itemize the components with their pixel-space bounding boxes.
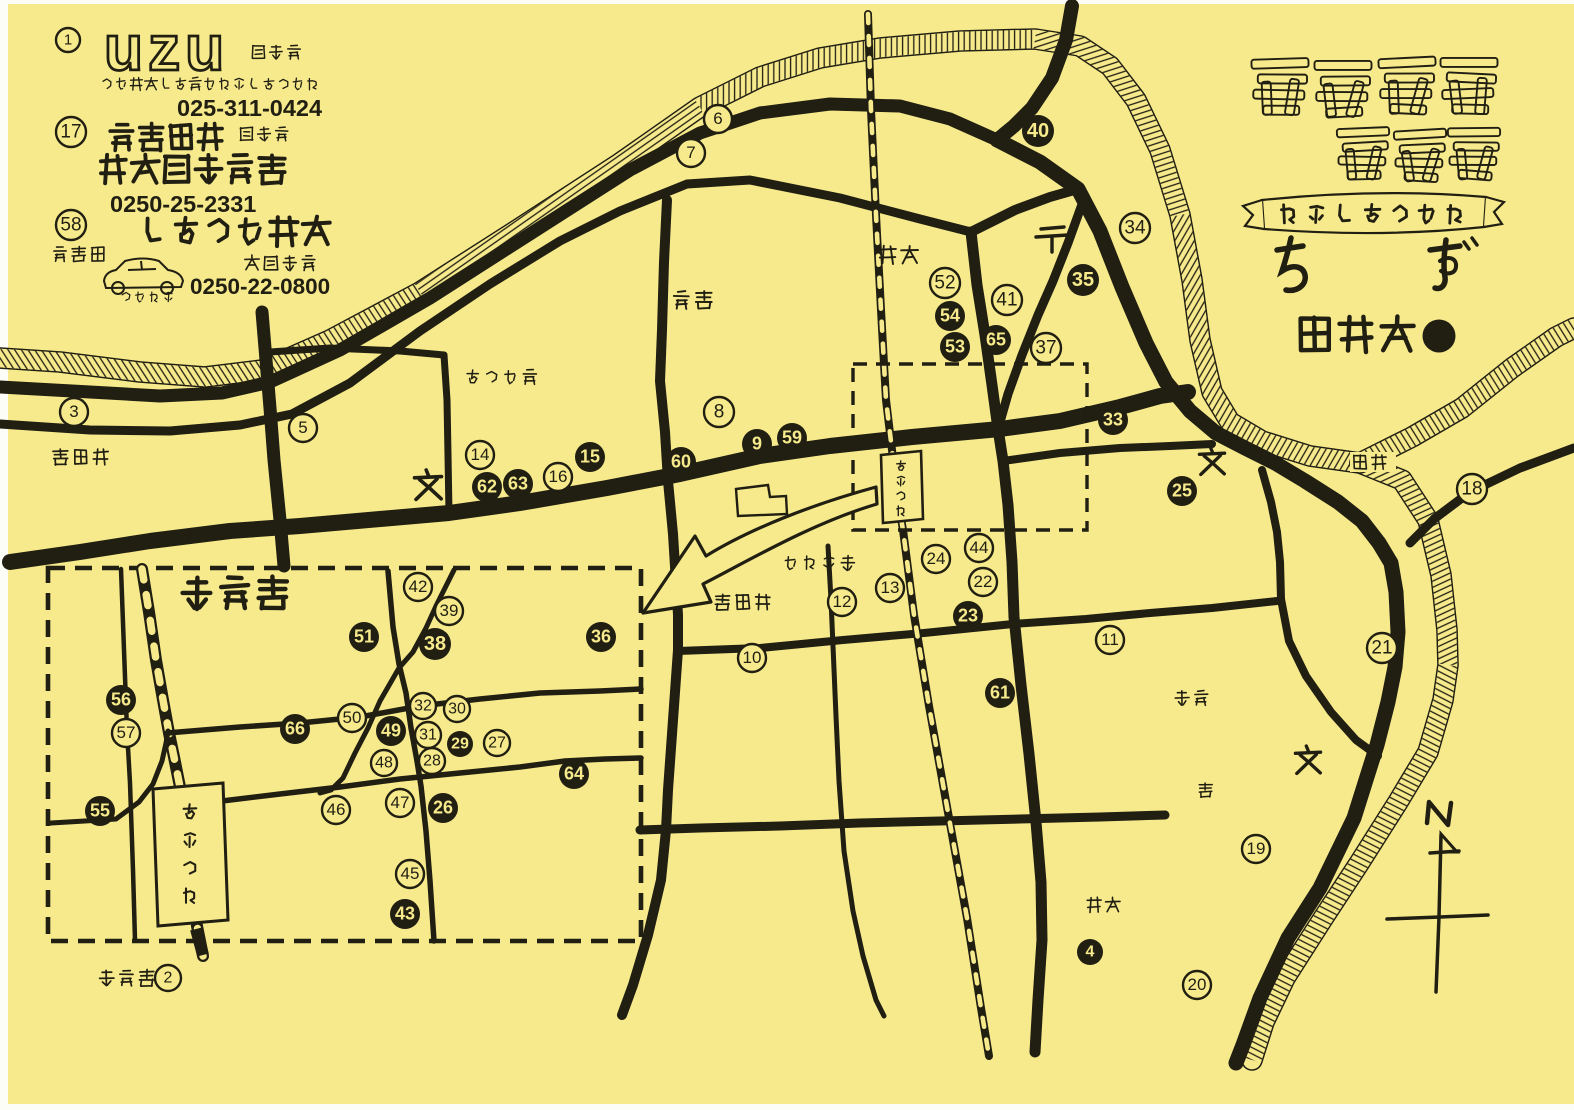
- svg-text:40: 40: [1027, 120, 1049, 142]
- svg-text:17: 17: [60, 121, 81, 142]
- svg-text:32: 32: [414, 698, 432, 715]
- svg-text:18: 18: [1461, 478, 1482, 499]
- svg-text:61: 61: [990, 682, 1010, 702]
- svg-text:30: 30: [448, 701, 466, 718]
- svg-text:0250-22-0800: 0250-22-0800: [190, 274, 330, 299]
- svg-text:7: 7: [686, 143, 695, 162]
- svg-text:59: 59: [782, 427, 802, 447]
- svg-text:35: 35: [1072, 269, 1094, 291]
- svg-text:65: 65: [986, 329, 1006, 349]
- svg-text:43: 43: [395, 903, 415, 923]
- svg-text:37: 37: [1035, 337, 1056, 358]
- svg-text:21: 21: [1371, 637, 1392, 658]
- svg-text:45: 45: [401, 864, 420, 883]
- svg-text:64: 64: [564, 763, 584, 783]
- svg-text:66: 66: [285, 718, 305, 738]
- svg-text:58: 58: [60, 214, 81, 235]
- svg-text:56: 56: [111, 689, 131, 709]
- svg-text:55: 55: [90, 800, 110, 820]
- svg-text:44: 44: [970, 538, 989, 557]
- svg-text:50: 50: [343, 708, 362, 727]
- svg-text:46: 46: [327, 800, 346, 819]
- svg-text:24: 24: [927, 549, 946, 568]
- svg-text:41: 41: [996, 289, 1017, 310]
- svg-text:22: 22: [974, 572, 993, 591]
- svg-text:3: 3: [69, 402, 78, 421]
- svg-text:62: 62: [477, 476, 497, 496]
- svg-text:5: 5: [298, 418, 307, 437]
- svg-text:16: 16: [549, 467, 568, 486]
- svg-text:49: 49: [381, 720, 401, 740]
- svg-text:12: 12: [833, 592, 852, 611]
- svg-text:8: 8: [714, 401, 725, 422]
- svg-text:025-311-0424: 025-311-0424: [177, 95, 322, 121]
- svg-text:29: 29: [451, 736, 469, 753]
- svg-text:28: 28: [423, 753, 441, 770]
- svg-text:42: 42: [409, 577, 428, 596]
- svg-text:20: 20: [1188, 975, 1207, 994]
- svg-text:33: 33: [1103, 409, 1123, 429]
- svg-text:26: 26: [433, 797, 453, 817]
- svg-text:63: 63: [508, 473, 528, 493]
- svg-text:52: 52: [934, 272, 955, 293]
- svg-text:36: 36: [591, 626, 611, 646]
- svg-text:60: 60: [671, 451, 691, 471]
- svg-text:53: 53: [945, 336, 965, 356]
- svg-text:uzu: uzu: [104, 12, 229, 84]
- svg-text:34: 34: [1124, 217, 1146, 238]
- svg-text:2: 2: [164, 970, 173, 987]
- svg-text:11: 11: [1101, 630, 1119, 649]
- svg-text:31: 31: [419, 727, 437, 744]
- svg-text:13: 13: [881, 578, 900, 597]
- svg-text:4: 4: [1086, 944, 1095, 961]
- svg-text:39: 39: [440, 601, 459, 620]
- svg-text:54: 54: [940, 305, 960, 325]
- svg-text:0250-25-2331: 0250-25-2331: [110, 191, 256, 217]
- svg-text:9: 9: [752, 433, 762, 453]
- svg-text:1: 1: [64, 31, 72, 48]
- svg-text:51: 51: [354, 626, 374, 646]
- svg-text:19: 19: [1247, 839, 1266, 858]
- svg-text:14: 14: [471, 445, 490, 464]
- svg-text:48: 48: [375, 755, 393, 772]
- svg-text:38: 38: [424, 633, 446, 655]
- svg-text:6: 6: [713, 109, 722, 128]
- svg-text:57: 57: [117, 723, 136, 742]
- svg-text:15: 15: [580, 446, 600, 466]
- svg-text:10: 10: [743, 648, 762, 667]
- svg-text:27: 27: [488, 735, 506, 752]
- svg-text:25: 25: [1172, 480, 1192, 500]
- svg-text:23: 23: [958, 605, 978, 625]
- svg-text:47: 47: [391, 793, 410, 812]
